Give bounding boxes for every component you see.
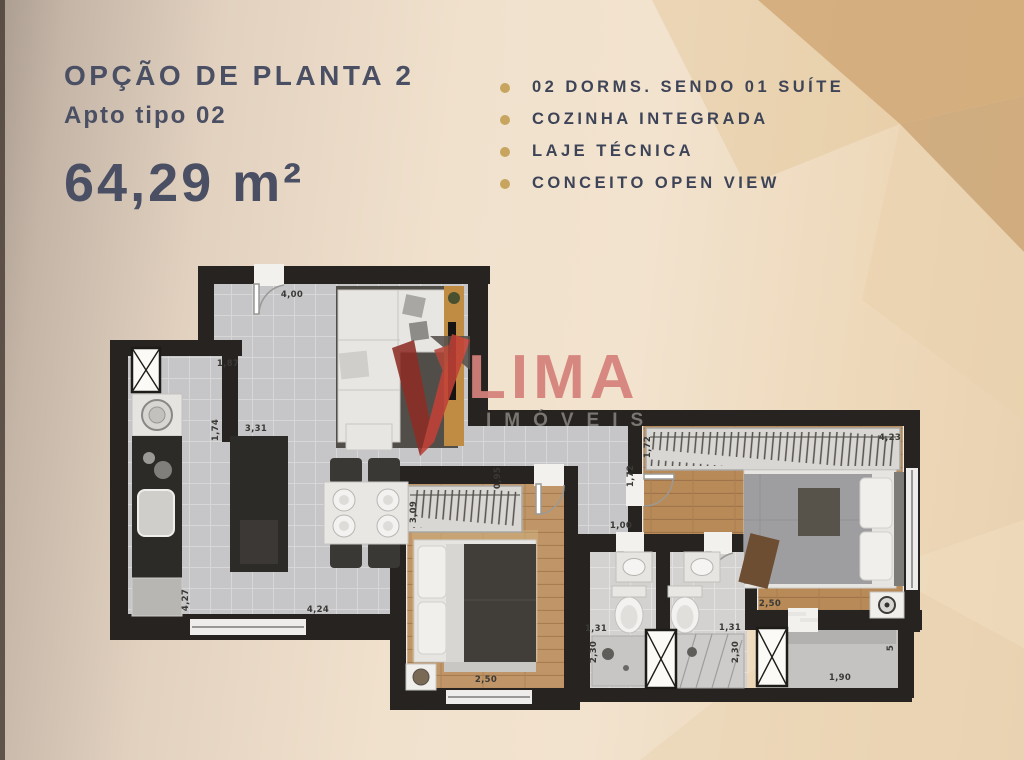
bedroom2-rug bbox=[412, 530, 538, 662]
brand-watermark: LIMA IMÓVEIS bbox=[384, 330, 904, 460]
dimension-label: 1,90 bbox=[829, 673, 851, 683]
bullet-icon bbox=[500, 83, 510, 93]
feature-list: 02 DORMS. SENDO 01 SUÍTE COZINHA INTEGRA… bbox=[500, 78, 844, 206]
bedroom2-floor bbox=[406, 482, 566, 690]
chair bbox=[368, 458, 400, 484]
bullet-icon bbox=[500, 147, 510, 157]
hall-floor bbox=[578, 424, 630, 538]
kitchen-sink bbox=[138, 490, 174, 536]
suite-floor bbox=[642, 424, 904, 612]
feature-item: CONCEITO OPEN VIEW bbox=[500, 174, 844, 193]
dimension-label: 1,72 bbox=[626, 465, 636, 487]
feature-label: CONCEITO OPEN VIEW bbox=[532, 174, 780, 193]
area-value: 64,29 m² bbox=[64, 152, 414, 214]
living-furniture bbox=[336, 286, 464, 450]
dining-table bbox=[324, 482, 408, 544]
room-floors bbox=[128, 282, 904, 690]
plant bbox=[448, 292, 460, 304]
dimension-label: 1,74 bbox=[211, 419, 221, 441]
bathroom2-fixtures bbox=[668, 552, 744, 688]
sink bbox=[684, 552, 720, 582]
suite-nightstand bbox=[870, 592, 904, 618]
sink bbox=[616, 552, 652, 582]
tv-panel bbox=[444, 286, 464, 446]
dimension-label: 4,27 bbox=[181, 589, 191, 611]
sofa bbox=[338, 290, 400, 442]
kitchen-counter bbox=[132, 436, 182, 578]
ottoman bbox=[346, 424, 392, 450]
dimension-label: 2,50 bbox=[475, 675, 497, 685]
toilet bbox=[615, 597, 643, 633]
dimension-label: 2,30 bbox=[589, 641, 599, 663]
bg-triangle bbox=[640, 570, 1024, 760]
dimension-label: 1,31 bbox=[585, 624, 607, 634]
wardrobes bbox=[408, 428, 900, 532]
feature-item: COZINHA INTEGRADA bbox=[500, 110, 844, 129]
shaft-box bbox=[132, 348, 160, 392]
toilet bbox=[671, 597, 699, 633]
chair bbox=[330, 458, 362, 484]
bathroom1-fixtures bbox=[592, 552, 652, 686]
tv bbox=[448, 322, 456, 400]
washer bbox=[132, 394, 182, 436]
shower bbox=[592, 636, 646, 686]
dining-set bbox=[324, 458, 408, 568]
passage-floor bbox=[460, 424, 630, 472]
dimension-label: 1,31 bbox=[719, 623, 741, 633]
dimension-label: 4,24 bbox=[307, 605, 329, 615]
bg-triangle bbox=[862, 124, 1024, 420]
brand-checkmark-icon bbox=[384, 330, 484, 462]
brand-tagline: IMÓVEIS bbox=[486, 410, 656, 432]
walls bbox=[110, 266, 922, 710]
dimension-label: 1,87 bbox=[217, 359, 239, 369]
feature-item: 02 DORMS. SENDO 01 SUÍTE bbox=[500, 78, 844, 97]
bedroom2-wardrobe bbox=[408, 486, 522, 532]
dimension-label: 0,95 bbox=[493, 467, 503, 489]
feature-label: 02 DORMS. SENDO 01 SUÍTE bbox=[532, 78, 844, 97]
shaft-box bbox=[757, 628, 787, 686]
page-title: OPÇÃO DE PLANTA 2 bbox=[64, 60, 414, 92]
bg-triangle bbox=[900, 96, 1024, 252]
windows bbox=[190, 468, 918, 704]
shower bbox=[674, 634, 744, 688]
chair bbox=[330, 542, 362, 568]
dimension-label: 4,00 bbox=[281, 290, 303, 300]
photo-edge bbox=[0, 0, 5, 760]
dimension-label: 3,09 bbox=[409, 501, 419, 523]
dimension-label: 2,50 bbox=[759, 599, 781, 609]
kitchen-floor bbox=[128, 354, 240, 618]
dimension-label: 3,31 bbox=[245, 424, 267, 434]
feature-label: COZINHA INTEGRADA bbox=[532, 110, 769, 129]
plan-header: OPÇÃO DE PLANTA 2 Apto tipo 02 64,29 m² bbox=[64, 60, 414, 214]
door-gaps bbox=[254, 264, 818, 632]
dining-floor bbox=[238, 436, 394, 618]
kitchen-island bbox=[230, 436, 288, 572]
suite-wardrobe bbox=[646, 428, 900, 470]
bathroom2-floor bbox=[670, 550, 747, 690]
dimension-label: 1,72 bbox=[643, 436, 653, 458]
bg-triangle bbox=[880, 520, 1024, 648]
suite-furniture bbox=[738, 470, 904, 618]
door-leaves bbox=[254, 284, 818, 622]
shaft-box bbox=[646, 630, 676, 688]
chair bbox=[368, 542, 400, 568]
dimension-label: 2,30 bbox=[731, 641, 741, 663]
feature-item: LAJE TÉCNICA bbox=[500, 142, 844, 161]
suite-bed bbox=[744, 470, 896, 588]
shafts bbox=[646, 628, 787, 688]
feature-label: LAJE TÉCNICA bbox=[532, 142, 694, 161]
bullet-icon bbox=[500, 179, 510, 189]
balcony-floor bbox=[757, 626, 899, 690]
dimension-label: 5 bbox=[886, 645, 896, 651]
kitchen-fixtures bbox=[132, 348, 288, 616]
brochure-page: OPÇÃO DE PLANTA 2 Apto tipo 02 64,29 m² … bbox=[0, 0, 1024, 760]
balcony-counter bbox=[760, 630, 896, 644]
living-rug bbox=[336, 286, 458, 448]
dimension-label: 4,23 bbox=[879, 433, 901, 443]
bedroom2-nightstand bbox=[406, 664, 436, 690]
brand-name: LIMA bbox=[468, 342, 640, 413]
bullet-icon bbox=[500, 115, 510, 125]
page-subtitle: Apto tipo 02 bbox=[64, 102, 414, 130]
living-room-floor bbox=[212, 282, 470, 472]
dimension-label: 1,00 bbox=[610, 521, 632, 531]
dimension-labels: 4,001,871,743,314,274,240,953,092,501,00… bbox=[181, 290, 901, 685]
kitchen-cabinet bbox=[132, 578, 182, 616]
bathroom1-floor bbox=[590, 550, 660, 690]
bedroom2-bed bbox=[414, 540, 536, 662]
bedroom2-furniture bbox=[406, 540, 536, 690]
